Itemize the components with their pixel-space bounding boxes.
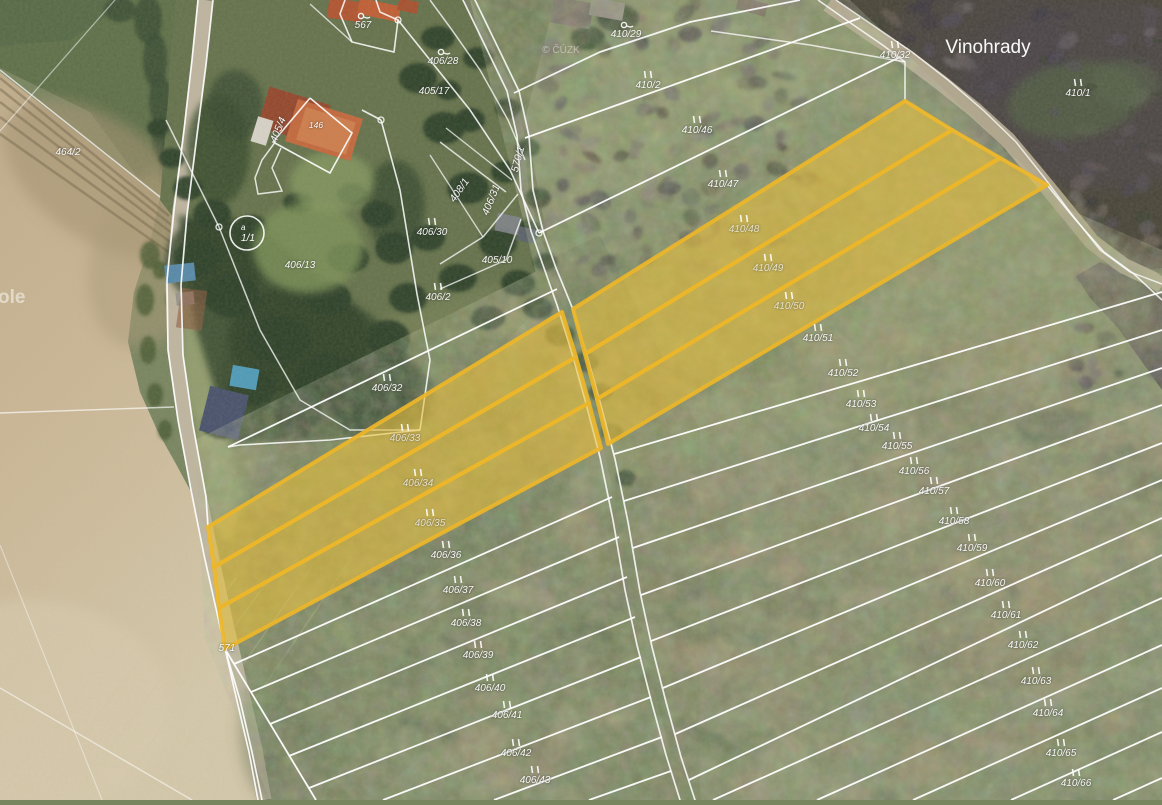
svg-text:406/33: 406/33 <box>390 433 421 444</box>
svg-text:406/42: 406/42 <box>501 748 532 759</box>
svg-text:405/17: 405/17 <box>419 86 450 97</box>
svg-text:406/39: 406/39 <box>463 650 494 661</box>
svg-text:1/1: 1/1 <box>241 233 255 244</box>
svg-text:464/2: 464/2 <box>55 147 80 158</box>
svg-text:406/34: 406/34 <box>403 478 434 489</box>
svg-text:410/55: 410/55 <box>882 441 913 452</box>
svg-text:410/63: 410/63 <box>1021 676 1052 687</box>
svg-text:410/47: 410/47 <box>708 179 739 190</box>
svg-text:ole: ole <box>0 287 25 308</box>
svg-text:410/54: 410/54 <box>859 423 890 434</box>
svg-text:410/61: 410/61 <box>991 610 1022 621</box>
svg-text:410/65: 410/65 <box>1046 748 1077 759</box>
svg-text:405/10: 405/10 <box>482 255 513 266</box>
svg-text:571: 571 <box>219 643 236 654</box>
svg-text:406/43: 406/43 <box>520 775 551 786</box>
svg-text:410/51: 410/51 <box>803 333 834 344</box>
svg-text:146: 146 <box>309 120 323 130</box>
svg-text:406/30: 406/30 <box>417 227 448 238</box>
svg-text:410/49: 410/49 <box>753 263 784 274</box>
svg-text:410/1: 410/1 <box>1065 88 1090 99</box>
svg-text:410/64: 410/64 <box>1033 708 1064 719</box>
svg-text:567: 567 <box>355 20 372 31</box>
svg-text:406/13: 406/13 <box>285 260 316 271</box>
svg-text:410/62: 410/62 <box>1008 640 1039 651</box>
svg-text:410/50: 410/50 <box>774 301 805 312</box>
svg-text:a: a <box>241 223 246 232</box>
svg-text:© ČÚZK: © ČÚZK <box>542 43 580 56</box>
svg-text:410/66: 410/66 <box>1061 778 1092 789</box>
svg-text:Vinohrady: Vinohrady <box>945 37 1031 58</box>
svg-text:410/46: 410/46 <box>682 125 713 136</box>
svg-text:410/32: 410/32 <box>880 50 911 61</box>
svg-text:406/2: 406/2 <box>425 292 450 303</box>
svg-text:410/58: 410/58 <box>939 516 970 527</box>
svg-text:410/57: 410/57 <box>919 486 950 497</box>
svg-text:410/48: 410/48 <box>729 224 760 235</box>
svg-text:410/53: 410/53 <box>846 399 877 410</box>
svg-text:410/60: 410/60 <box>975 578 1006 589</box>
svg-text:410/2: 410/2 <box>635 80 660 91</box>
svg-text:410/56: 410/56 <box>899 466 930 477</box>
svg-text:406/32: 406/32 <box>372 383 403 394</box>
svg-text:410/29: 410/29 <box>611 29 642 40</box>
svg-text:410/52: 410/52 <box>828 368 859 379</box>
svg-text:406/35: 406/35 <box>415 518 446 529</box>
svg-text:406/40: 406/40 <box>475 683 506 694</box>
svg-text:406/41: 406/41 <box>492 710 523 721</box>
svg-text:410/59: 410/59 <box>957 543 988 554</box>
svg-text:406/28: 406/28 <box>428 56 459 67</box>
svg-text:406/36: 406/36 <box>431 550 462 561</box>
svg-text:406/38: 406/38 <box>451 618 482 629</box>
svg-text:406/37: 406/37 <box>443 585 474 596</box>
